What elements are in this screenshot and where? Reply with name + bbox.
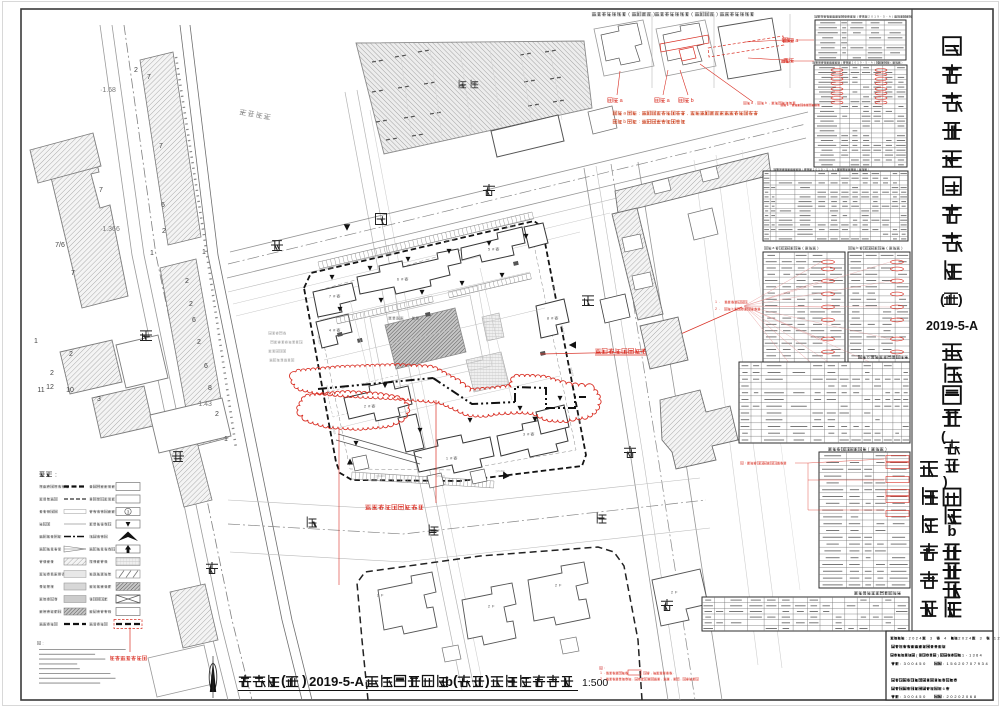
svg-text:b: b: [623, 119, 626, 124]
svg-text:6: 6: [161, 202, 165, 209]
svg-text:5: 5: [919, 661, 921, 666]
svg-text:b: b: [947, 523, 956, 540]
svg-text:2: 2: [69, 351, 73, 358]
svg-text::: :: [639, 119, 640, 124]
svg-text:.: .: [719, 307, 720, 311]
svg-text:4: 4: [980, 653, 982, 657]
svg-text:-: -: [869, 61, 870, 64]
svg-text:2YF453: 2YF453: [495, 469, 505, 473]
svg-text:5: 5: [950, 661, 952, 666]
svg-text:2YF453: 2YF453: [375, 474, 385, 478]
svg-text:2: 2: [185, 278, 189, 285]
svg-text:(: (: [281, 672, 286, 688]
svg-text:6: 6: [192, 317, 196, 324]
svg-text:2: 2: [197, 339, 201, 346]
svg-text:1: 1: [150, 250, 154, 257]
svg-text:2: 2: [947, 694, 949, 699]
svg-text:): ): [958, 291, 963, 307]
svg-text:·1.68: ·1.68: [100, 87, 116, 94]
svg-text::: :: [900, 694, 901, 699]
svg-text:9: 9: [978, 661, 980, 666]
svg-text:.: .: [719, 300, 720, 304]
svg-text:): ): [874, 60, 875, 64]
svg-text::: :: [55, 471, 57, 478]
svg-text::: :: [943, 694, 944, 699]
svg-text::: :: [900, 661, 901, 666]
svg-text:a: a: [772, 246, 774, 250]
svg-text:2: 2: [215, 411, 219, 418]
svg-text:.: .: [604, 677, 605, 681]
svg-text:,: ,: [687, 111, 688, 116]
svg-text::: :: [42, 641, 43, 645]
svg-text:): ): [901, 246, 902, 250]
svg-text:,: ,: [633, 677, 634, 681]
svg-text:1: 1: [969, 653, 971, 657]
svg-text:10: 10: [66, 387, 74, 394]
svg-text:a: a: [623, 111, 626, 116]
svg-text:7: 7: [147, 74, 151, 81]
svg-text:1: 1: [600, 671, 602, 675]
svg-text:2: 2: [997, 636, 999, 640]
svg-text:A: A: [871, 60, 873, 64]
svg-text:,: ,: [769, 101, 770, 105]
svg-text:1: 1: [994, 636, 996, 640]
svg-text:): ): [485, 672, 490, 688]
svg-text:-: -: [886, 15, 887, 19]
svg-text:0: 0: [962, 636, 964, 640]
svg-text:7: 7: [974, 661, 976, 666]
svg-text:3: 3: [982, 661, 984, 666]
svg-text:): ): [302, 672, 307, 688]
svg-text:·1.366: ·1.366: [100, 226, 120, 233]
svg-text:2: 2: [958, 661, 960, 666]
svg-text:,: ,: [661, 677, 662, 681]
svg-text:7/6: 7/6: [55, 242, 65, 249]
svg-text:2: 2: [909, 636, 911, 640]
svg-text:7: 7: [966, 661, 968, 666]
svg-text::: :: [745, 461, 746, 465]
svg-text:.: .: [604, 671, 605, 675]
svg-text:2: 2: [162, 228, 166, 235]
svg-text:7: 7: [99, 187, 103, 194]
svg-text:.: .: [673, 671, 674, 675]
svg-text:(: (: [857, 15, 858, 19]
svg-text:8: 8: [974, 694, 976, 699]
svg-text:2: 2: [50, 370, 54, 377]
svg-text:11: 11: [37, 387, 44, 394]
svg-text:-: -: [880, 15, 881, 19]
svg-text:7: 7: [159, 143, 163, 150]
svg-text:7: 7: [71, 270, 75, 277]
svg-text:2: 2: [715, 307, 717, 311]
svg-text:2019-5-A: 2019-5-A: [926, 319, 978, 333]
svg-text:1: 1: [715, 300, 717, 304]
svg-text:5: 5: [919, 694, 921, 699]
svg-text:,: ,: [671, 677, 672, 681]
svg-text:2: 2: [600, 677, 602, 681]
svg-text:1: 1: [224, 436, 228, 443]
svg-text:3: 3: [904, 661, 906, 666]
svg-text:0: 0: [912, 636, 914, 640]
svg-text::: :: [943, 661, 944, 666]
svg-text:a: a: [795, 38, 798, 44]
svg-text:3: 3: [97, 396, 101, 403]
svg-text:(: (: [891, 60, 892, 64]
svg-text:6: 6: [970, 694, 972, 699]
svg-text:b: b: [856, 246, 858, 250]
svg-text:2: 2: [962, 694, 964, 699]
svg-text:,: ,: [651, 671, 652, 675]
svg-text:(: (: [453, 672, 458, 688]
svg-text:6: 6: [976, 653, 978, 657]
svg-text:): ): [817, 246, 818, 250]
svg-text:6: 6: [204, 363, 208, 370]
svg-text:1: 1: [947, 661, 949, 666]
svg-text:2: 2: [965, 636, 967, 640]
svg-text:): ): [902, 60, 903, 64]
svg-text:1: 1: [962, 653, 964, 657]
svg-text:b: b: [765, 101, 767, 105]
svg-text:b: b: [445, 674, 453, 689]
svg-text:4: 4: [969, 636, 971, 640]
svg-text:·1.43: ·1.43: [196, 401, 212, 408]
svg-text::: :: [906, 636, 907, 640]
svg-text:b: b: [732, 307, 734, 311]
svg-text:12: 12: [46, 384, 54, 391]
svg-text::: :: [604, 666, 605, 670]
svg-text:-: -: [863, 61, 864, 64]
svg-text:3: 3: [980, 636, 982, 640]
svg-text:3: 3: [930, 636, 932, 640]
svg-text:,: ,: [681, 677, 682, 681]
svg-text:2: 2: [134, 67, 138, 74]
svg-text:): ): [892, 15, 893, 19]
svg-text:4: 4: [919, 636, 921, 640]
svg-text:a: a: [751, 101, 753, 105]
svg-text:2019-5-A: 2019-5-A: [309, 674, 364, 689]
svg-text:2YF453: 2YF453: [435, 474, 445, 478]
svg-text:): ): [943, 473, 948, 489]
svg-text:2: 2: [916, 636, 918, 640]
svg-text:2: 2: [189, 301, 193, 308]
svg-text:,: ,: [755, 101, 756, 105]
svg-text:3: 3: [973, 653, 975, 657]
svg-text:6: 6: [954, 661, 956, 666]
svg-text:2: 2: [958, 636, 960, 640]
svg-text:1: 1: [202, 249, 206, 256]
svg-text:A: A: [889, 15, 891, 19]
svg-text:b: b: [691, 98, 694, 104]
svg-text:4: 4: [944, 636, 946, 640]
svg-text:1: 1: [34, 338, 38, 345]
svg-text:3: 3: [127, 510, 130, 515]
svg-text:(: (: [841, 60, 842, 64]
svg-text:): ): [937, 653, 938, 657]
svg-text:8: 8: [208, 385, 212, 392]
svg-text:3: 3: [904, 694, 906, 699]
svg-text::: :: [639, 111, 640, 116]
svg-text:2: 2: [954, 694, 956, 699]
svg-text:6: 6: [943, 686, 945, 691]
